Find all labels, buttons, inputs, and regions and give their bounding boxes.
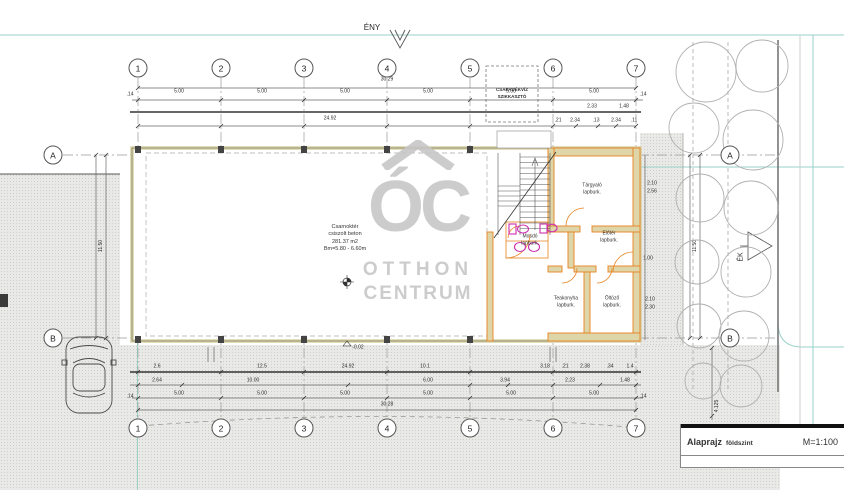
car-icon: [62, 337, 116, 413]
hall-annotation: Csarnoktér csiszolt beton 281.37 m2 Bm=5…: [324, 224, 366, 254]
tree-canopies: [669, 40, 788, 407]
hall-name: Csarnoktér: [324, 224, 366, 231]
drawing-subtitle: földszint: [726, 440, 753, 447]
title-block: Alaprajzföldszint M=1:100: [680, 424, 844, 468]
grid-bubble-5-top: 5: [461, 59, 480, 78]
entrance-canopy: [497, 131, 551, 148]
grid-bubble-3-top: 3: [295, 59, 314, 78]
grid-bubble-5-bottom: 5: [461, 419, 480, 438]
room-label-targyalo: Tárgyalólapburk.: [582, 182, 601, 196]
north-arrow-icon: [390, 30, 410, 48]
hall-finish: csiszolt beton: [324, 232, 366, 239]
drawing-title: Alaprajz: [687, 437, 722, 447]
grid-bubble-1-top: 1: [129, 59, 148, 78]
hall-height: Bm=5.80 - 6.60m: [324, 246, 366, 253]
floor-plan-canvas: ÓC OTTHON CENTRUM ÉNY ÉK 1 2 3 4 5 6 7 1…: [0, 0, 844, 500]
grid-bubble-7-bottom: 7: [627, 419, 646, 438]
utility-pole-mark: [0, 294, 8, 307]
grid-bubble-2-top: 2: [212, 59, 231, 78]
drawing-scale: M=1:100: [803, 437, 838, 447]
room-label-oltozo: Öltözőlapburk.: [603, 295, 621, 309]
dimension-lines-bottom: [130, 347, 643, 410]
grid-bubble-6-top: 6: [544, 59, 563, 78]
grid-bubble-4-top: 4: [378, 59, 397, 78]
east-direction-icon: [740, 232, 772, 260]
hall-area: 281.37 m2: [324, 239, 366, 246]
grid-bubble-3-bottom: 3: [295, 419, 314, 438]
room-label-teakonyha: Teakonyhalapburk.: [554, 295, 578, 309]
grid-bubble-2-bottom: 2: [212, 419, 231, 438]
grid-bubble-A-right: A: [721, 146, 740, 165]
room-label-eloter: Előtérlapburk.: [600, 230, 618, 244]
grid-bubble-1-bottom: 1: [129, 419, 148, 438]
grid-bubble-A-left: A: [44, 146, 63, 165]
grid-bubble-B-right: B: [721, 329, 740, 348]
grid-bubble-4-bottom: 4: [378, 419, 397, 438]
room-label-mosdo: Mosdólapburk.: [521, 233, 539, 247]
title-block-row: Alaprajzföldszint M=1:100: [681, 428, 844, 456]
grid-bubble-7-top: 7: [627, 59, 646, 78]
grid-bubble-6-bottom: 6: [544, 419, 563, 438]
soakaway-dashed-box: [486, 66, 538, 122]
grid-bubble-B-left: B: [44, 329, 63, 348]
building-outline-wall: [132, 148, 640, 341]
title-block-empty-row: [681, 456, 844, 467]
